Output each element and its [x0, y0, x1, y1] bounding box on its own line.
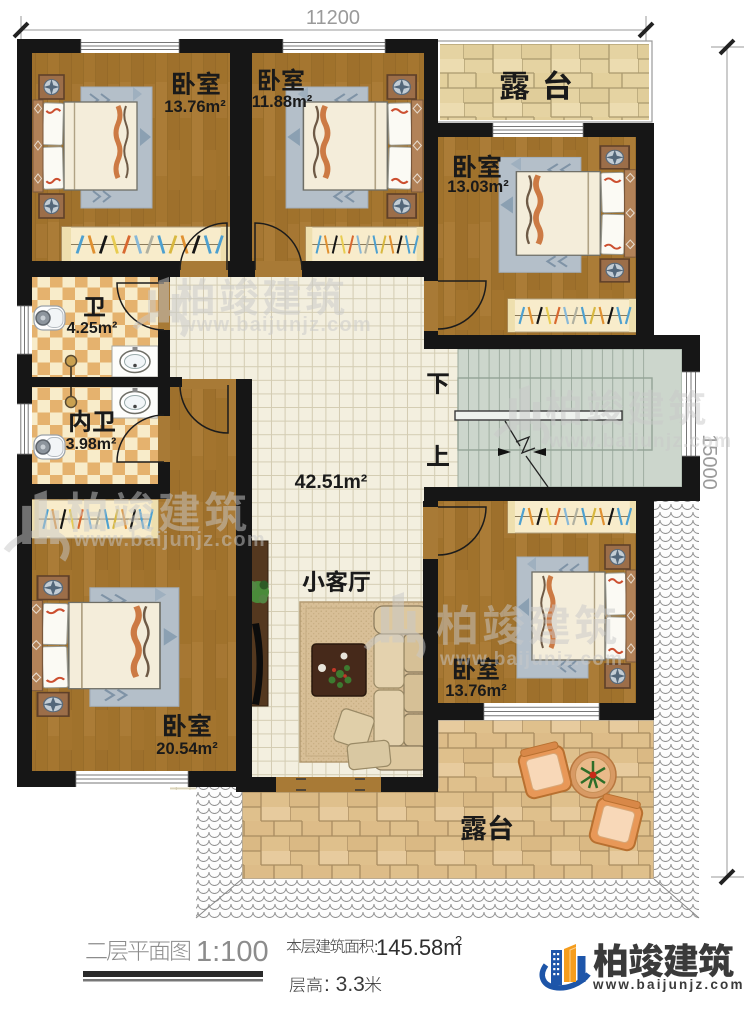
- svg-text:13.76m²: 13.76m²: [445, 682, 507, 700]
- svg-text:: 3.3: : 3.3: [324, 973, 365, 996]
- svg-text:145.58m: 145.58m: [376, 935, 462, 960]
- svg-text:13.76m²: 13.76m²: [164, 98, 226, 116]
- svg-text:www.baijunjz.com: www.baijunjz.com: [179, 314, 372, 336]
- svg-text:1:100: 1:100: [196, 936, 269, 968]
- svg-text:www.baijunjz.com: www.baijunjz.com: [73, 529, 266, 551]
- svg-text:13.03m²: 13.03m²: [447, 178, 509, 196]
- svg-text:www.baijunjz.com: www.baijunjz.com: [548, 431, 732, 452]
- svg-text:www.baijunjz.com: www.baijunjz.com: [439, 649, 623, 670]
- svg-text:42.51m²: 42.51m²: [295, 471, 368, 493]
- svg-text:11.88m²: 11.88m²: [252, 93, 313, 111]
- svg-text:4.25m²: 4.25m²: [67, 320, 118, 337]
- svg-text:3.98m²: 3.98m²: [66, 436, 117, 453]
- svg-text:20.54m²: 20.54m²: [156, 740, 218, 758]
- svg-text:2: 2: [455, 933, 462, 948]
- svg-text:11200: 11200: [306, 7, 360, 29]
- svg-text:www.baijunjz.com: www.baijunjz.com: [592, 977, 745, 992]
